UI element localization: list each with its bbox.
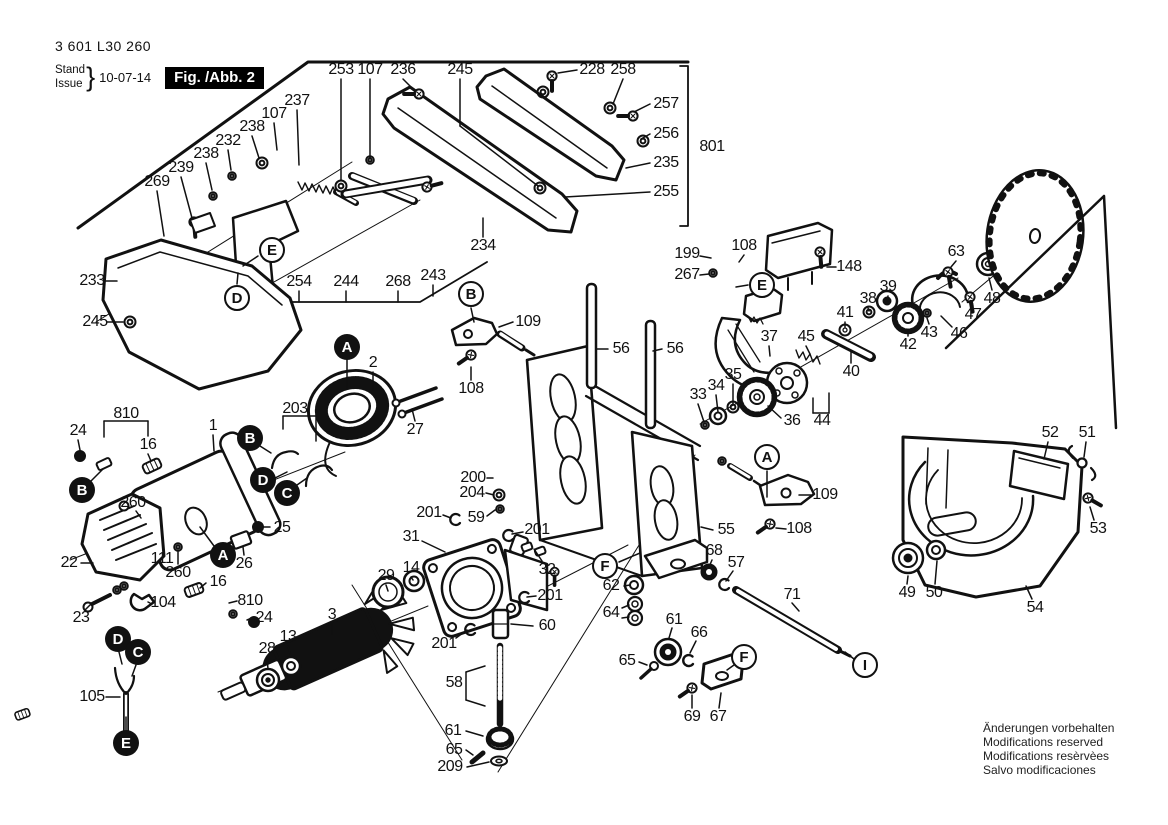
part-label-51: 51 xyxy=(1079,424,1096,442)
part-label-66: 66 xyxy=(691,624,708,642)
ref-circle-c: C xyxy=(274,480,300,506)
part-label-1: 1 xyxy=(209,417,217,435)
part-label-801: 801 xyxy=(699,138,724,156)
notice-line-fr: Modifications resèrvèes xyxy=(983,750,1114,764)
part-label-34: 34 xyxy=(708,377,725,395)
ref-circle-i: I xyxy=(852,652,878,678)
part-label-255: 255 xyxy=(653,183,678,201)
title-block: 3 601 L30 260 Stand Issue } 10-07-14 Fig… xyxy=(55,38,264,93)
figure-badge: Fig. /Abb. 2 xyxy=(165,67,264,89)
part-label-42: 42 xyxy=(900,336,917,354)
part-label-65: 65 xyxy=(446,741,463,759)
part-label-14: 14 xyxy=(403,559,420,577)
part-label-22: 22 xyxy=(61,554,78,572)
part-label-148: 148 xyxy=(836,258,861,276)
part-label-108: 108 xyxy=(731,237,756,255)
part-label-238: 238 xyxy=(239,118,264,136)
stand-label: Stand xyxy=(55,64,85,77)
part-label-55: 55 xyxy=(718,521,735,539)
part-label-810: 810 xyxy=(237,592,262,610)
part-label-54: 54 xyxy=(1027,599,1044,617)
part-label-50: 50 xyxy=(926,584,943,602)
notice-line-en: Modifications reserved xyxy=(983,736,1114,750)
ref-circle-b: B xyxy=(69,477,95,503)
part-label-209: 209 xyxy=(437,758,462,776)
ref-circle-e: E xyxy=(749,272,775,298)
ref-circle-d: D xyxy=(250,467,276,493)
part-label-39: 39 xyxy=(880,278,897,296)
part-label-40: 40 xyxy=(843,363,860,381)
part-label-257: 257 xyxy=(653,95,678,113)
part-label-267: 267 xyxy=(674,266,699,284)
part-label-61: 61 xyxy=(445,722,462,740)
ref-circle-a: A xyxy=(754,444,780,470)
part-label-254: 254 xyxy=(286,273,311,291)
part-label-237: 237 xyxy=(284,92,309,110)
part-label-201: 201 xyxy=(416,504,441,522)
part-label-38: 38 xyxy=(860,290,877,308)
part-label-25: 25 xyxy=(274,519,291,537)
document-part-number: 3 601 L30 260 xyxy=(55,38,264,54)
part-label-238: 238 xyxy=(193,145,218,163)
ref-circle-e: E xyxy=(259,237,285,263)
part-label-235: 235 xyxy=(653,154,678,172)
part-label-201: 201 xyxy=(537,587,562,605)
part-label-203: 203 xyxy=(282,400,307,418)
part-label-245: 245 xyxy=(447,61,472,79)
notice-line-de: Änderungen vorbehalten xyxy=(983,722,1114,736)
part-label-201: 201 xyxy=(431,635,456,653)
part-label-31: 31 xyxy=(403,528,420,546)
part-label-47: 47 xyxy=(965,306,982,324)
revision-date: 10-07-14 xyxy=(99,70,151,85)
part-label-43: 43 xyxy=(921,324,938,342)
ref-circle-f: F xyxy=(731,644,757,670)
part-label-61: 61 xyxy=(666,611,683,629)
brace-glyph: } xyxy=(86,62,95,93)
part-label-41: 41 xyxy=(837,304,854,322)
labels-layer: 2531072362452282582572562352558012371072… xyxy=(0,0,1168,825)
part-label-45: 45 xyxy=(798,328,815,346)
part-label-236: 236 xyxy=(390,61,415,79)
part-label-52: 52 xyxy=(1042,424,1059,442)
part-label-63: 63 xyxy=(948,243,965,261)
part-label-58: 58 xyxy=(446,674,463,692)
part-label-244: 244 xyxy=(333,273,358,291)
part-label-3: 3 xyxy=(328,606,336,624)
part-label-232: 232 xyxy=(215,132,240,150)
part-label-109: 109 xyxy=(812,486,837,504)
revision-notice: Änderungen vorbehalten Modifications res… xyxy=(983,722,1114,778)
part-label-65: 65 xyxy=(619,652,636,670)
part-label-104: 104 xyxy=(150,594,175,612)
part-label-260: 260 xyxy=(120,494,145,512)
part-label-49: 49 xyxy=(899,584,916,602)
part-label-56: 56 xyxy=(667,340,684,358)
part-label-107: 107 xyxy=(357,61,382,79)
ref-circle-b: B xyxy=(237,425,263,451)
part-label-268: 268 xyxy=(385,273,410,291)
ref-circle-a: A xyxy=(210,542,236,568)
part-label-33: 33 xyxy=(690,386,707,404)
part-label-233: 233 xyxy=(79,272,104,290)
part-label-35: 35 xyxy=(725,366,742,384)
part-label-62: 62 xyxy=(603,577,620,595)
part-label-16: 16 xyxy=(140,436,157,454)
part-label-29: 29 xyxy=(378,567,395,585)
part-label-67: 67 xyxy=(710,708,727,726)
ref-circle-e: E xyxy=(113,730,139,756)
part-label-57: 57 xyxy=(728,554,745,572)
part-label-109: 109 xyxy=(515,313,540,331)
part-label-239: 239 xyxy=(168,159,193,177)
part-label-24: 24 xyxy=(70,422,87,440)
issue-label: Issue xyxy=(55,78,85,91)
part-label-107: 107 xyxy=(261,105,286,123)
part-label-201: 201 xyxy=(524,521,549,539)
part-label-46: 46 xyxy=(951,325,968,343)
notice-line-es: Salvo modificaciones xyxy=(983,764,1114,778)
part-label-64: 64 xyxy=(603,604,620,622)
part-label-48: 48 xyxy=(984,290,1001,308)
part-label-56: 56 xyxy=(613,340,630,358)
parts-diagram-page: 2531072362452282582572562352558012371072… xyxy=(0,0,1168,825)
part-label-68: 68 xyxy=(706,542,723,560)
part-label-228: 228 xyxy=(579,61,604,79)
part-label-16: 16 xyxy=(210,573,227,591)
ref-circle-a: A xyxy=(334,334,360,360)
part-label-26: 26 xyxy=(236,555,253,573)
part-label-32: 32 xyxy=(539,561,556,579)
part-label-243: 243 xyxy=(420,267,445,285)
part-label-199: 199 xyxy=(674,245,699,263)
part-label-260: 260 xyxy=(165,564,190,582)
part-label-108: 108 xyxy=(786,520,811,538)
part-label-44: 44 xyxy=(814,412,831,430)
part-label-23: 23 xyxy=(73,609,90,627)
part-label-258: 258 xyxy=(610,61,635,79)
part-label-105: 105 xyxy=(79,688,104,706)
part-label-69: 69 xyxy=(684,708,701,726)
ref-circle-c: C xyxy=(125,639,151,665)
part-label-204: 204 xyxy=(459,484,484,502)
part-label-71: 71 xyxy=(784,586,801,604)
part-label-245: 245 xyxy=(82,313,107,331)
part-label-810: 810 xyxy=(113,405,138,423)
part-label-253: 253 xyxy=(328,61,353,79)
ref-circle-d: D xyxy=(224,285,250,311)
ref-circle-f: F xyxy=(592,553,618,579)
revision-labels: Stand Issue xyxy=(55,64,85,90)
part-label-27: 27 xyxy=(407,421,424,439)
part-label-36: 36 xyxy=(784,412,801,430)
part-label-59: 59 xyxy=(468,509,485,527)
part-label-234: 234 xyxy=(470,237,495,255)
part-label-28: 28 xyxy=(259,640,276,658)
part-label-53: 53 xyxy=(1090,520,1107,538)
ref-circle-b: B xyxy=(458,281,484,307)
part-label-13: 13 xyxy=(280,628,297,646)
part-label-256: 256 xyxy=(653,125,678,143)
part-label-60: 60 xyxy=(539,617,556,635)
revision-row: Stand Issue } 10-07-14 Fig. /Abb. 2 xyxy=(55,62,264,93)
part-label-2: 2 xyxy=(369,354,377,372)
part-label-37: 37 xyxy=(761,328,778,346)
part-label-24: 24 xyxy=(256,609,273,627)
part-label-108: 108 xyxy=(458,380,483,398)
part-label-269: 269 xyxy=(144,173,169,191)
